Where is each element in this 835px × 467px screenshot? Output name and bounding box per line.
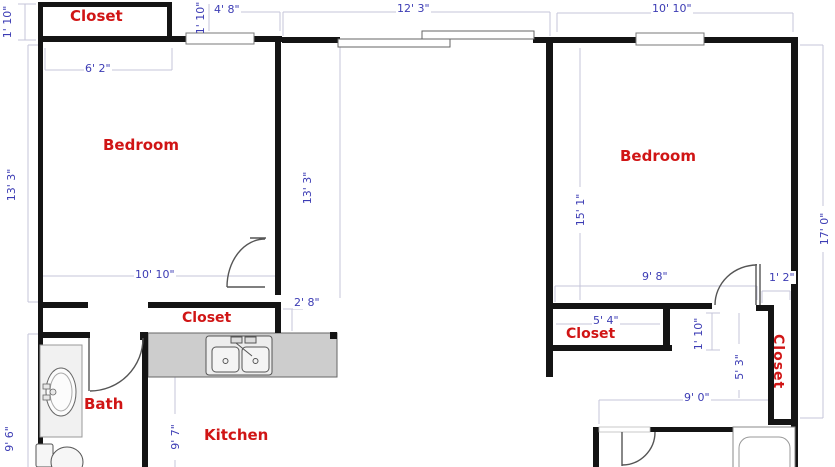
dim-bedroom-right-bottom-width: 9' 8": [641, 270, 669, 283]
dim-living-top-width: 12' 3": [396, 2, 431, 15]
sliding-door-panel-outer: [422, 31, 534, 39]
dim-line-door-offset: [762, 291, 790, 303]
dim-right-side-height: 17' 0": [818, 206, 832, 252]
dim-bedroom-left-width: 10' 10": [134, 268, 176, 281]
dim-closet-tl-depth: 1' 10": [1, 0, 15, 44]
dim-line-br-bottom-width: [555, 286, 757, 302]
bath-fixtures: [36, 345, 83, 467]
sliding-door: [338, 31, 534, 47]
dim-window-width: 4' 8": [213, 3, 241, 16]
label-bedroom-left: Bedroom: [103, 138, 179, 152]
dim-living-height: 13' 3": [301, 165, 315, 211]
bathtub: [733, 427, 795, 467]
label-closet-top-left: Closet: [70, 9, 123, 23]
dim-closet-br-width: 5' 4": [592, 314, 620, 327]
dim-bedroom-left-height: 13' 3": [5, 163, 19, 207]
label-closet-bedroom-right: Closet: [566, 327, 615, 341]
dim-window-offset: 1' 10": [194, 0, 208, 40]
door-bedroom-right: [715, 264, 760, 305]
label-closet-hall: Closet: [182, 311, 231, 325]
floor-plan: Closet Bedroom Bedroom Closet Closet Clo…: [0, 0, 835, 467]
dim-bath2-width: 9' 0": [683, 391, 711, 404]
dim-line-closet-tl-depth: [18, 4, 36, 40]
dim-line-br-top: [557, 13, 793, 32]
label-bath: Bath: [84, 397, 123, 411]
dim-bedroom-right-height: 15' 1": [574, 187, 588, 233]
toilet-bowl: [51, 447, 83, 467]
bath-faucet: [43, 384, 50, 389]
dim-hall-right-height: 5' 3": [733, 344, 747, 390]
label-closet-right: Closet: [771, 334, 785, 406]
door-bath2: [622, 432, 655, 466]
door-bath: [89, 338, 143, 391]
dim-hall-opening: 2' 8": [293, 296, 321, 309]
dim-closet-br-depth: 1' 10": [692, 311, 706, 357]
label-bedroom-right: Bedroom: [620, 149, 696, 163]
door-bedroom-left: [227, 238, 266, 287]
dim-door-offset: 1' 2": [768, 271, 796, 284]
sliding-door-panel-inner: [338, 39, 450, 47]
kitchen-sink: [206, 336, 272, 375]
dim-closet-tl-width: 6' 2": [84, 62, 112, 75]
toilet-tank: [36, 444, 53, 467]
label-kitchen: Kitchen: [204, 428, 268, 442]
door-bath2-jamb: [599, 427, 650, 432]
window-bedroom-right: [636, 33, 704, 45]
dim-line-hall-opening: [283, 309, 303, 331]
dim-bath-height: 9' 6": [3, 417, 17, 461]
dim-line-closet-br-depth: [704, 313, 720, 350]
dim-bedroom-right-top-width: 10' 10": [651, 2, 693, 15]
dim-kitchen-height: 9' 7": [169, 414, 183, 460]
